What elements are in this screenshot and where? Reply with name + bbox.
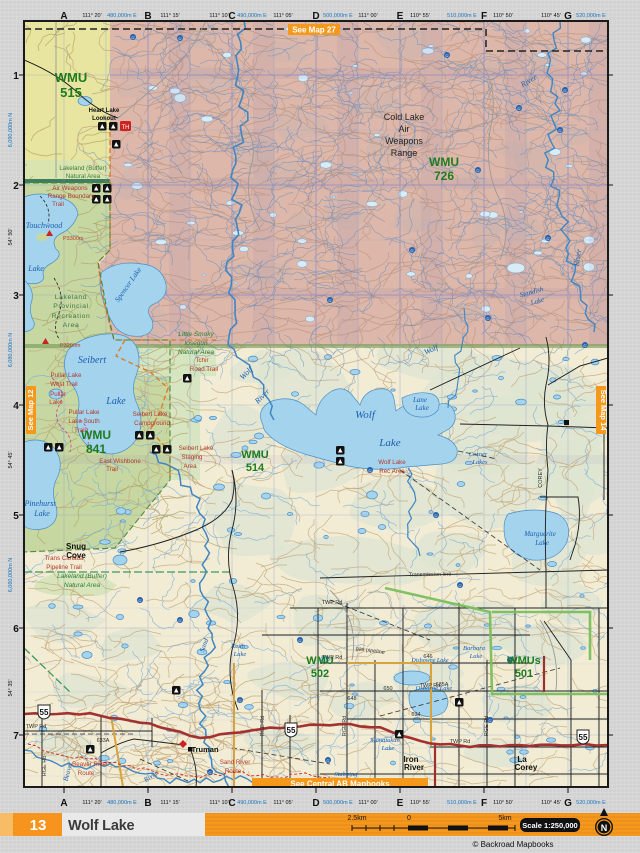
svg-text:Touchwood: Touchwood [26,221,64,230]
svg-text:648: 648 [347,696,356,702]
svg-text:Range Boundary: Range Boundary [48,193,95,200]
svg-text:Staging: Staging [182,454,204,461]
svg-text:2.5km: 2.5km [347,815,366,822]
svg-text:B: B [144,798,151,809]
svg-text:480,000m E: 480,000m E [107,800,137,806]
svg-text:Lake: Lake [469,653,483,660]
svg-text:A: A [60,11,67,22]
svg-text:6: 6 [13,624,19,635]
svg-text:Scale 1:250,000: Scale 1:250,000 [522,821,577,830]
svg-text:635A: 635A [436,682,449,688]
svg-text:500,000m E: 500,000m E [323,13,353,19]
svg-text:Area: Area [63,322,80,329]
svg-text:G: G [564,11,572,22]
svg-text:Lake: Lake [414,404,429,412]
svg-text:B: B [144,11,151,22]
svg-text:RGE Rd: RGE Rd [42,756,48,776]
svg-text:F: F [481,11,487,22]
svg-text:Provincial: Provincial [53,303,88,310]
svg-text:111° 10': 111° 10' [209,13,228,19]
svg-text:490,000m E: 490,000m E [237,800,267,806]
svg-text:54° 35': 54° 35' [8,679,14,696]
svg-text:490,000m E: 490,000m E [237,13,267,19]
svg-text:Lake: Lake [27,264,44,273]
svg-text:D: D [312,11,319,22]
svg-text:Wolf Lake: Wolf Lake [378,459,406,466]
svg-text:RGE Rd: RGE Rd [260,716,266,736]
svg-text:C: C [228,11,235,22]
svg-text:Lakes: Lakes [471,459,488,466]
svg-text:501: 501 [515,668,533,680]
svg-text:Marguerite: Marguerite [523,530,556,538]
svg-text:111° 10': 111° 10' [209,800,228,806]
svg-text:TWP Rd: TWP Rd [450,739,471,745]
svg-text:55: 55 [40,708,49,717]
svg-text:110° 55': 110° 55' [410,13,430,19]
svg-text:WMU: WMU [55,70,88,85]
svg-text:TWP Rd: TWP Rd [322,600,343,606]
svg-text:Pinehurst: Pinehurst [23,499,56,508]
svg-text:111° 00': 111° 00' [358,800,377,806]
svg-text:Lake South: Lake South [68,418,100,425]
svg-text:633A: 633A [97,738,110,744]
svg-text:3: 3 [13,291,19,302]
svg-text:726: 726 [434,169,454,183]
svg-text:111° 15': 111° 15' [160,800,179,806]
svg-text:Tchir: Tchir [195,357,208,364]
svg-text:Lake: Lake [49,399,63,406]
svg-text:110° 50': 110° 50' [493,13,513,19]
svg-text:Route: Route [78,770,95,777]
svg-text:Trail: Trail [52,201,64,208]
svg-text:WMU: WMU [429,155,459,169]
svg-text:0: 0 [407,815,411,822]
svg-text:P3200m: P3200m [60,343,81,349]
svg-text:520,000m E: 520,000m E [576,800,606,806]
svg-text:Lakeland: Lakeland [55,294,87,301]
svg-text:514: 514 [246,462,265,474]
svg-text:Air Weapons: Air Weapons [52,185,87,192]
svg-text:480,000m E: 480,000m E [107,13,137,19]
svg-text:Natural Area: Natural Area [178,349,215,356]
svg-text:WMU: WMU [241,449,269,461]
svg-text:Pullar: Pullar [50,391,66,398]
svg-text:Lake: Lake [233,651,247,658]
svg-text:WMUs: WMUs [507,655,541,667]
svg-text:Seibert Lake: Seibert Lake [133,411,168,418]
svg-text:650: 650 [383,686,392,692]
svg-text:110° 50': 110° 50' [493,800,513,806]
svg-text:TWP Rd: TWP Rd [26,724,47,730]
svg-text:54° 50': 54° 50' [8,228,14,245]
svg-text:Road Trail: Road Trail [190,366,218,373]
svg-text:N: N [601,823,608,833]
svg-text:Range: Range [391,148,418,158]
svg-text:Recreation: Recreation [52,313,91,320]
svg-text:River: River [404,763,424,772]
svg-text:646: 646 [423,654,432,660]
svg-text:Trail: Trail [74,427,86,434]
svg-text:Natural Area: Natural Area [66,173,101,180]
svg-text:Stabbing: Stabbing [334,771,358,778]
svg-text:RGE Rd: RGE Rd [342,716,348,736]
svg-text:510,000m E: 510,000m E [447,800,477,806]
svg-text:D: D [312,798,319,809]
svg-text:510,000m E: 510,000m E [447,13,477,19]
svg-text:500,000m E: 500,000m E [323,800,353,806]
svg-text:111° 05': 111° 05' [273,800,292,806]
svg-text:Campground: Campground [134,420,170,427]
svg-text:Lake: Lake [105,396,126,407]
svg-text:55: 55 [579,733,588,742]
svg-text:111° 00': 111° 00' [358,13,377,19]
svg-text:6,090,000m N: 6,090,000m N [8,113,14,148]
svg-text:Wolf Lake: Wolf Lake [68,818,135,834]
svg-text:Weapons: Weapons [385,136,423,146]
svg-text:Pullar Lake: Pullar Lake [69,409,101,416]
svg-text:502: 502 [311,668,329,680]
svg-text:Heart Lake: Heart Lake [89,108,120,114]
svg-text:See Map 12: See Map 12 [26,390,35,431]
svg-text:COREY: COREY [538,468,544,488]
svg-text:111° 05': 111° 05' [273,13,292,19]
svg-text:East Wishbone: East Wishbone [99,458,141,465]
svg-text:Lookout: Lookout [92,116,116,122]
svg-text:6,080,000m N: 6,080,000m N [8,333,14,368]
svg-text:6,060,000m N: 6,060,000m N [8,558,14,593]
svg-text:Transmission line: Transmission line [409,572,452,579]
svg-text:Trail: Trail [106,466,118,473]
svg-text:111° 20': 111° 20' [82,13,101,19]
svg-text:5km: 5km [498,815,511,822]
svg-text:111° 20': 111° 20' [82,800,101,806]
svg-text:Barbara: Barbara [463,645,485,652]
svg-text:F: F [481,798,487,809]
svg-text:13: 13 [30,817,47,834]
svg-text:2: 2 [13,181,19,192]
svg-text:7: 7 [13,731,19,742]
svg-text:Natural Area: Natural Area [64,582,101,589]
svg-text:Wolf: Wolf [355,409,377,421]
svg-text:Area: Area [183,463,197,470]
svg-text:E: E [397,11,404,22]
svg-text:Manatokan: Manatokan [369,737,400,744]
svg-text:Sand River: Sand River [220,759,251,766]
svg-text:55: 55 [287,726,296,735]
svg-text:A: A [60,798,67,809]
svg-text:841: 841 [86,442,106,456]
svg-text:Beaver River: Beaver River [72,761,108,768]
svg-text:111° 15': 111° 15' [160,13,179,19]
svg-text:110° 45': 110° 45' [541,800,561,806]
svg-text:Seibert: Seibert [78,355,107,366]
svg-text:E: E [397,798,404,809]
svg-text:Corner: Corner [469,451,488,458]
svg-text:TH: TH [122,125,130,131]
svg-text:Pullar Lake: Pullar Lake [51,372,83,379]
svg-text:Cold Lake: Cold Lake [384,112,425,122]
svg-text:Truman: Truman [191,745,219,754]
svg-text:Lake: Lake [534,539,549,547]
svg-text:Cove: Cove [66,551,86,560]
svg-text:West Trail: West Trail [50,381,77,388]
svg-text:Lane: Lane [412,396,427,404]
svg-text:Air: Air [399,124,410,134]
svg-text:Lake: Lake [33,509,50,518]
svg-text:5: 5 [13,511,19,522]
svg-text:See Map 27: See Map 27 [292,26,336,35]
svg-text:4: 4 [13,401,19,412]
svg-text:54° 45': 54° 45' [8,451,14,468]
svg-text:Pipeline Trail: Pipeline Trail [46,564,81,571]
svg-text:Little Smoky: Little Smoky [178,331,214,338]
svg-text:Keith: Keith [230,643,245,650]
svg-text:634: 634 [411,712,420,718]
svg-text:Lakeland (Buffer): Lakeland (Buffer) [59,165,106,172]
svg-text:Rec Area: Rec Area [379,468,405,475]
svg-text:Seibert Lake: Seibert Lake [179,445,214,452]
svg-text:G: G [564,798,572,809]
svg-text:Iosegun: Iosegun [184,340,208,347]
svg-text:Lake: Lake [381,745,395,752]
svg-text:TWP Rd: TWP Rd [322,655,343,661]
svg-text:110° 55': 110° 55' [410,800,430,806]
svg-text:C: C [228,798,235,809]
svg-text:RGE Rd: RGE Rd [484,716,490,736]
svg-text:Lakeland (Buffer): Lakeland (Buffer) [57,573,107,580]
svg-text:Route: Route [225,768,242,775]
svg-text:1: 1 [13,71,19,82]
svg-text:520,000m E: 520,000m E [576,13,606,19]
svg-text:Snug: Snug [66,542,86,551]
svg-text:P3300m: P3300m [63,236,84,242]
svg-text:© Backroad Mapbooks: © Backroad Mapbooks [472,840,553,849]
svg-text:110° 45': 110° 45' [541,13,561,19]
svg-text:515: 515 [60,85,82,100]
svg-text:Corey: Corey [515,763,538,772]
svg-text:See Map 14: See Map 14 [599,390,608,432]
svg-text:Lake: Lake [378,437,401,449]
